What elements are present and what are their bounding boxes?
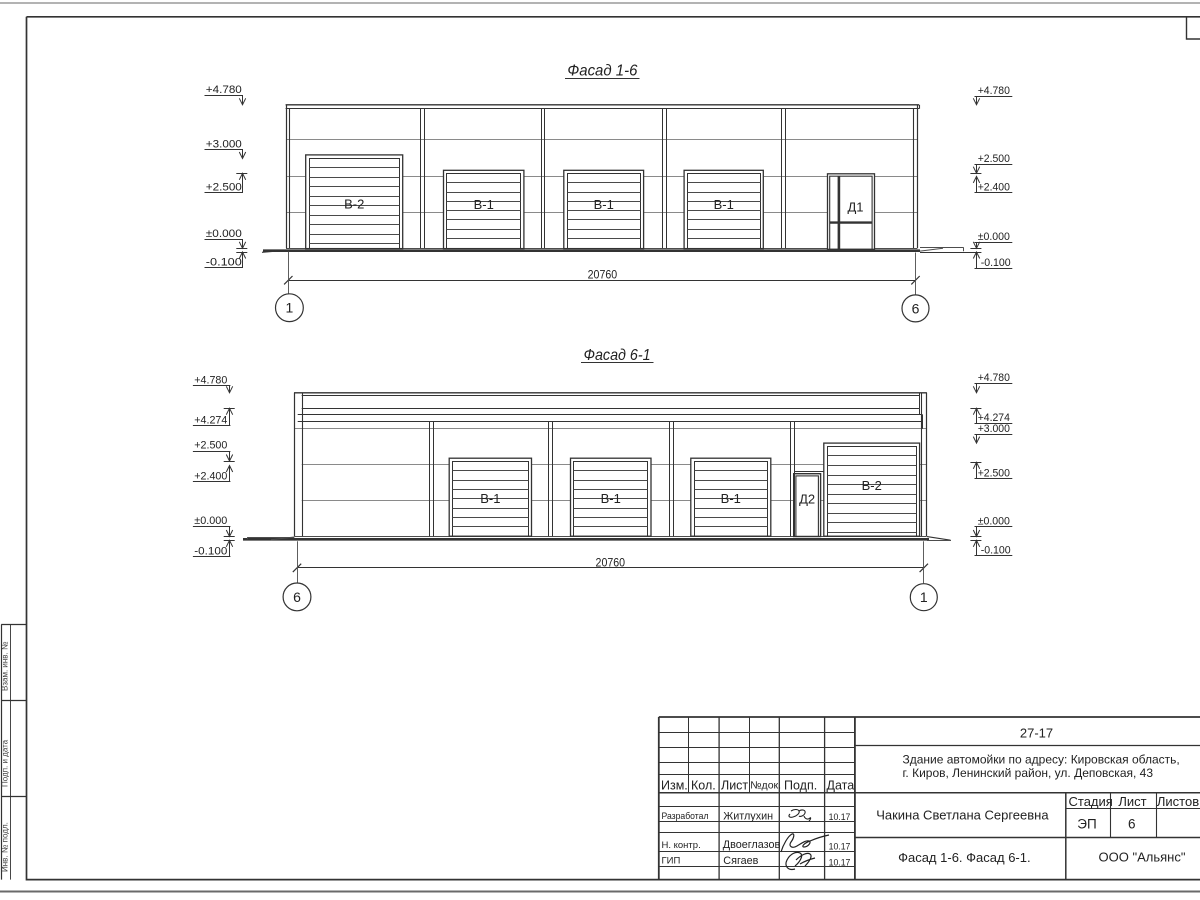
svg-text:Фасад 6-1: Фасад 6-1 (584, 347, 651, 364)
svg-text:Чакина Светлана Сергеевна: Чакина Светлана Сергеевна (876, 807, 1049, 822)
svg-text:+3.000: +3.000 (978, 423, 1010, 435)
svg-text:ООО "Альянс": ООО "Альянс" (1099, 849, 1186, 864)
svg-text:В-1: В-1 (594, 197, 614, 212)
svg-text:±0.000: ±0.000 (206, 228, 242, 240)
svg-text:Изм.: Изм. (661, 778, 688, 792)
svg-text:10.17: 10.17 (829, 858, 851, 869)
svg-text:№док.: №док. (750, 780, 781, 792)
svg-text:+4.780: +4.780 (978, 372, 1010, 384)
svg-text:Лист: Лист (1118, 794, 1146, 809)
svg-text:+4.274: +4.274 (194, 414, 227, 426)
svg-text:±0.000: ±0.000 (194, 515, 227, 527)
svg-text:Сягаев: Сягаев (723, 855, 758, 867)
svg-text:Фасад 1-6: Фасад 1-6 (567, 63, 637, 80)
svg-text:6: 6 (1128, 817, 1136, 832)
svg-text:В-1: В-1 (480, 491, 500, 506)
svg-text:ЭП: ЭП (1077, 817, 1096, 832)
svg-text:+2.500: +2.500 (194, 440, 227, 452)
svg-text:±0.000: ±0.000 (978, 516, 1010, 528)
svg-text:Здание автомойки по адресу: Ки: Здание автомойки по адресу: Кировская об… (903, 752, 1180, 766)
svg-text:Дата: Дата (827, 778, 855, 792)
svg-text:Фасад 1-6. Фасад 6-1.: Фасад 1-6. Фасад 6-1. (898, 850, 1031, 865)
svg-text:10.17: 10.17 (829, 812, 851, 823)
svg-text:В-1: В-1 (601, 491, 621, 506)
svg-text:Житлухин: Житлухин (723, 811, 773, 823)
svg-text:В-1: В-1 (714, 197, 734, 212)
svg-text:6: 6 (293, 589, 301, 605)
svg-text:20760: 20760 (596, 555, 626, 569)
svg-text:+2.400: +2.400 (194, 471, 227, 483)
svg-text:Инв. № подл.: Инв. № подл. (1, 822, 10, 872)
svg-text:+3.000: +3.000 (206, 139, 242, 151)
svg-text:Н. контр.: Н. контр. (662, 840, 701, 851)
svg-text:+2.500: +2.500 (978, 468, 1010, 480)
svg-text:+2.500: +2.500 (206, 181, 242, 193)
svg-text:Стадия: Стадия (1069, 794, 1113, 809)
svg-text:г. Киров, Ленинский район, ул.: г. Киров, Ленинский район, ул. Деповская… (903, 766, 1154, 780)
svg-text:+4.780: +4.780 (206, 84, 242, 96)
svg-text:В-2: В-2 (344, 197, 364, 212)
svg-text:10.17: 10.17 (829, 842, 851, 853)
svg-text:-0.100: -0.100 (206, 257, 242, 269)
svg-text:Листов: Листов (1157, 794, 1199, 809)
svg-text:Д1: Д1 (847, 200, 863, 215)
svg-text:-0.100: -0.100 (981, 257, 1011, 269)
svg-text:-0.100: -0.100 (981, 545, 1011, 557)
svg-text:Д2: Д2 (799, 492, 815, 507)
svg-text:1: 1 (286, 300, 294, 316)
svg-text:1: 1 (920, 589, 928, 605)
svg-text:Лист: Лист (721, 778, 748, 792)
svg-text:+4.780: +4.780 (194, 374, 227, 386)
svg-text:Разработал: Разработал (662, 811, 709, 822)
svg-text:6: 6 (912, 300, 920, 316)
svg-text:+4.780: +4.780 (978, 85, 1010, 97)
svg-text:+2.500: +2.500 (978, 153, 1010, 165)
svg-text:+2.400: +2.400 (978, 181, 1010, 193)
svg-text:Подп.: Подп. (784, 778, 817, 792)
svg-text:Подп. и дата: Подп. и дата (1, 739, 10, 787)
svg-text:В-1: В-1 (721, 491, 741, 506)
svg-text:ГИП: ГИП (662, 856, 681, 867)
svg-text:±0.000: ±0.000 (978, 231, 1010, 243)
svg-text:-0.100: -0.100 (194, 546, 227, 558)
svg-text:Кол.: Кол. (691, 778, 716, 792)
svg-text:27-17: 27-17 (1020, 725, 1053, 740)
svg-text:20760: 20760 (588, 268, 618, 282)
svg-text:Двоеглазов: Двоеглазов (723, 839, 781, 851)
svg-text:В-2: В-2 (862, 478, 882, 493)
svg-text:В-1: В-1 (474, 197, 494, 212)
svg-text:Взам. инв. №: Взам. инв. № (1, 641, 10, 691)
